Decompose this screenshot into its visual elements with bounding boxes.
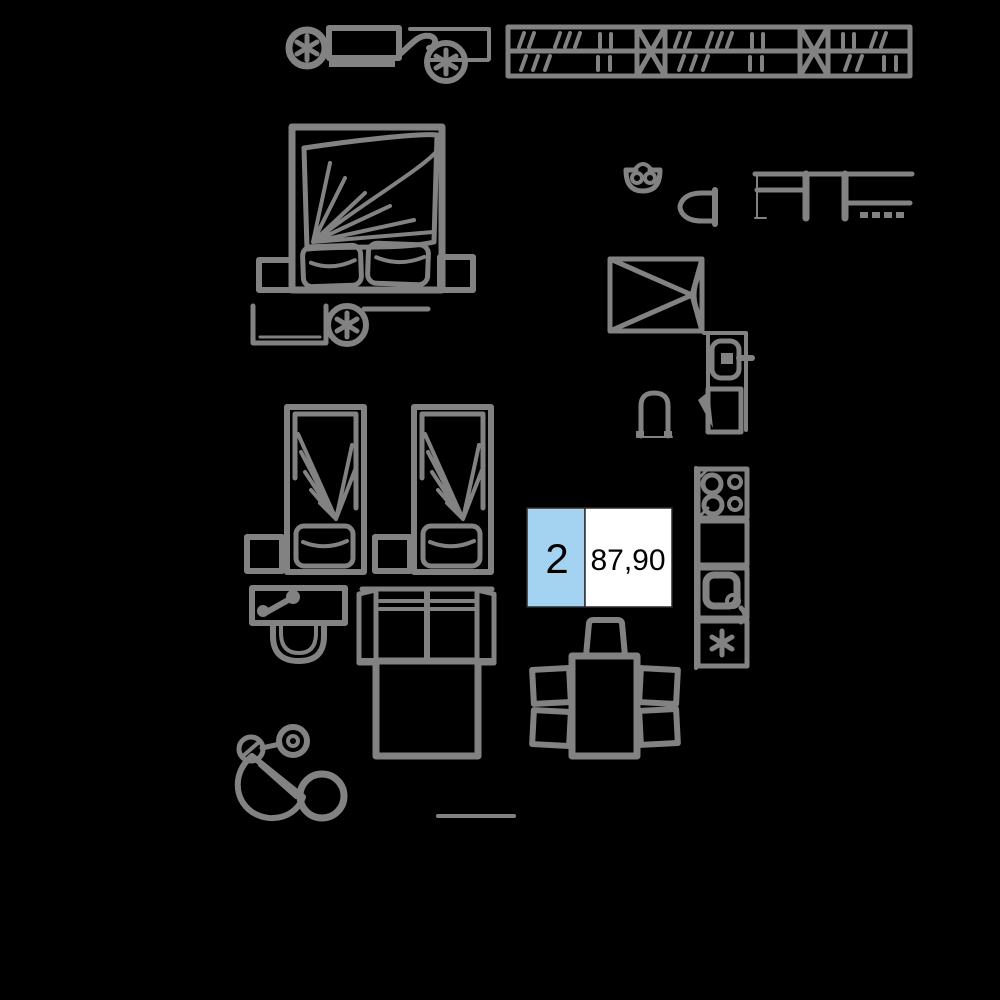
dining-set [532, 620, 678, 756]
chair [532, 668, 571, 704]
burner-icon [729, 476, 741, 488]
pillow-crease [303, 541, 347, 546]
chair [639, 668, 678, 704]
blanket-folds [298, 434, 355, 519]
d-fixture [680, 190, 715, 224]
plan-lines [238, 27, 912, 818]
blanket-folds [313, 152, 436, 242]
pullout-bed [376, 661, 478, 756]
pillow-crease [430, 541, 474, 546]
sofa-bed [359, 589, 494, 756]
chair [639, 709, 678, 745]
sink-bowl [706, 575, 737, 606]
basin-inner [281, 623, 316, 653]
wardrobe [508, 27, 910, 76]
kitchen-sink [698, 568, 747, 622]
shower-arc [695, 274, 701, 316]
small-wheel-icon [279, 727, 307, 755]
wheeled-sketch-bottom [238, 727, 344, 818]
asterisk-icon [337, 313, 357, 337]
body-inner-line [260, 765, 296, 797]
single-bed [287, 407, 364, 572]
nightstand [259, 260, 292, 290]
dishwasher [698, 621, 747, 666]
cooktop [698, 469, 747, 518]
plan-svg: 2 87,90 [0, 0, 1000, 1000]
shower-diagonals [610, 259, 702, 331]
faucet-head [286, 590, 300, 604]
armrest [359, 590, 376, 663]
body-shell [238, 756, 303, 818]
hanger-ticks-top [519, 33, 886, 47]
floor-plan-canvas: 2 87,90 [0, 0, 1000, 1000]
faucet-base [257, 605, 269, 617]
big-wheel-icon [300, 774, 344, 818]
shower-tray [610, 259, 702, 331]
counter-thin-edge [755, 176, 766, 218]
hanger-ticks-bottom [521, 56, 896, 70]
toilet-flush [721, 353, 733, 364]
double-bed [253, 127, 473, 344]
dining-table [572, 656, 637, 756]
burner-icon [703, 475, 721, 493]
blanket-folds [425, 434, 482, 519]
sconce-icon [626, 164, 660, 191]
unit-area-value: 87,90 [590, 544, 665, 577]
single-bed [414, 407, 491, 572]
kitchen-column [696, 468, 747, 668]
counter-module [698, 521, 747, 565]
armrest [477, 590, 494, 663]
burner-icon [729, 498, 741, 510]
floor-line [436, 814, 516, 818]
body-box [329, 28, 399, 58]
bathroom-fixtures [698, 333, 752, 432]
counter-legs [806, 174, 845, 218]
bath-appliance [708, 389, 741, 432]
washbasin [252, 588, 345, 661]
counter-feet [860, 212, 904, 218]
asterisk-icon [712, 631, 732, 655]
unit-rooms-value: 2 [545, 535, 568, 582]
base-bar [329, 61, 395, 67]
chair [532, 710, 571, 746]
asterisk-icon [297, 36, 317, 60]
pillow [302, 245, 361, 287]
chair [586, 620, 625, 656]
kitchen-counter-elevation [755, 174, 912, 218]
unit-label[interactable]: 2 87,90 [527, 508, 672, 607]
nightstand [247, 537, 282, 571]
nightstand [375, 537, 410, 571]
wheeled-sketch-top [289, 28, 489, 81]
stool [636, 393, 672, 437]
